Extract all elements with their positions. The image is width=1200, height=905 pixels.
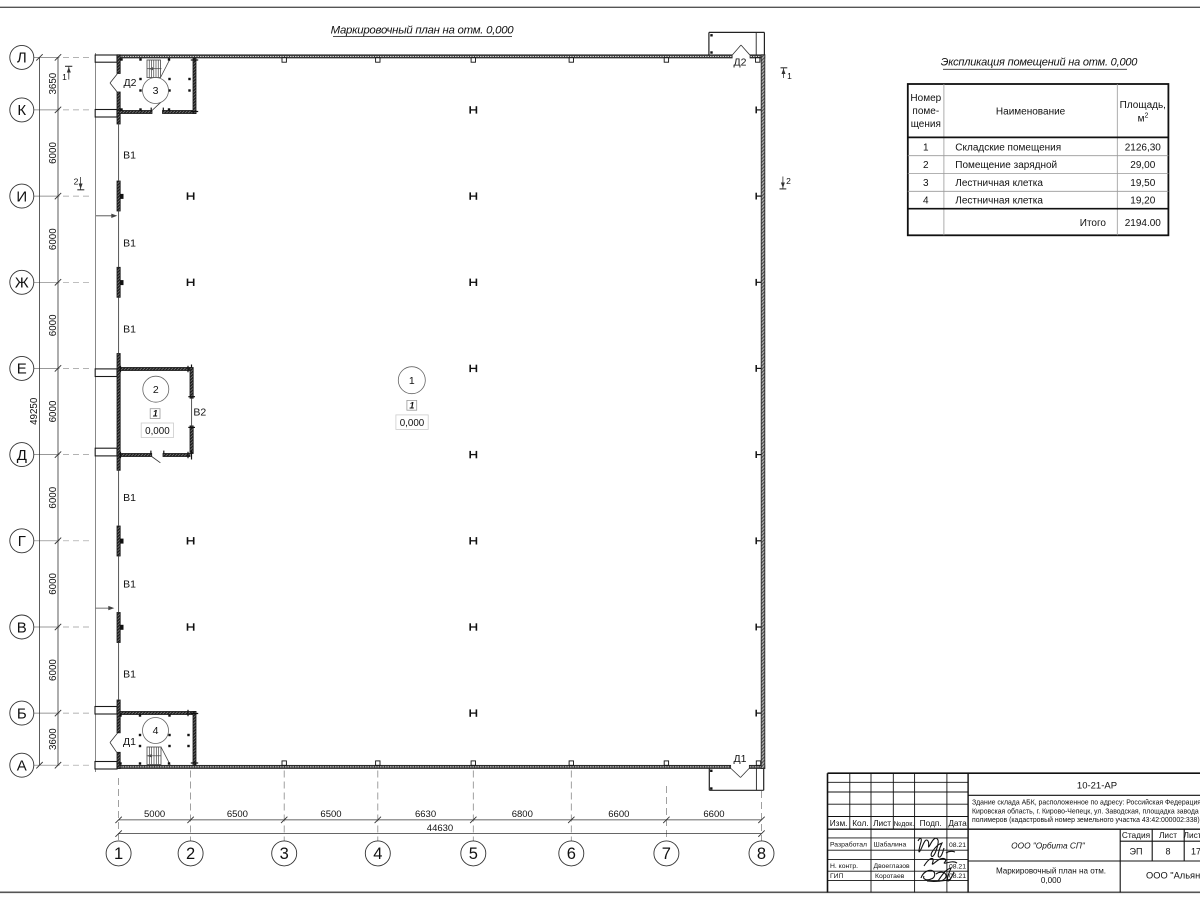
- svg-text:19,50: 19,50: [1130, 178, 1155, 189]
- svg-text:Г: Г: [18, 533, 26, 550]
- svg-text:4: 4: [923, 196, 929, 207]
- svg-text:Лист: Лист: [1159, 830, 1177, 840]
- svg-text:0,000: 0,000: [1041, 876, 1062, 885]
- svg-text:Н. контр.: Н. контр.: [830, 863, 858, 870]
- svg-text:6000: 6000: [48, 400, 59, 422]
- svg-text:Стадия: Стадия: [1122, 830, 1150, 840]
- svg-text:6000: 6000: [48, 142, 59, 164]
- svg-text:Шабалина: Шабалина: [874, 841, 907, 849]
- svg-text:08.21: 08.21: [949, 863, 966, 870]
- svg-text:6000: 6000: [48, 486, 59, 508]
- svg-text:10-21-АР: 10-21-АР: [1077, 780, 1117, 791]
- svg-text:К: К: [17, 102, 26, 119]
- svg-text:Разработал: Разработал: [830, 841, 867, 849]
- svg-text:5000: 5000: [144, 809, 165, 820]
- svg-text:6600: 6600: [703, 809, 724, 820]
- svg-text:6630: 6630: [415, 809, 436, 820]
- svg-text:В1: В1: [123, 150, 136, 162]
- svg-text:2126,30: 2126,30: [1125, 142, 1162, 153]
- svg-text:4: 4: [373, 845, 382, 863]
- svg-text:3650: 3650: [48, 72, 59, 94]
- svg-text:2: 2: [186, 845, 195, 863]
- svg-text:Ж: Ж: [15, 275, 29, 292]
- svg-text:2194.00: 2194.00: [1125, 218, 1162, 229]
- svg-text:3: 3: [153, 85, 159, 97]
- svg-text:Дата: Дата: [948, 818, 967, 828]
- svg-text:6000: 6000: [48, 228, 59, 250]
- svg-text:поме-: поме-: [912, 106, 939, 117]
- svg-text:6800: 6800: [512, 809, 533, 820]
- svg-text:1: 1: [153, 409, 158, 419]
- svg-text:Лестничная клетка: Лестничная клетка: [955, 178, 1043, 189]
- svg-text:Е: Е: [17, 361, 27, 378]
- svg-text:17: 17: [1191, 847, 1200, 857]
- svg-text:Кол.: Кол.: [852, 818, 868, 828]
- svg-text:Лестничная клетка: Лестничная клетка: [955, 196, 1043, 207]
- svg-text:6500: 6500: [320, 809, 341, 820]
- svg-text:2: 2: [923, 160, 929, 171]
- svg-text:Подп.: Подп.: [920, 818, 942, 828]
- svg-text:В: В: [17, 619, 27, 636]
- svg-text:ЭП: ЭП: [1130, 847, 1143, 857]
- svg-text:1: 1: [409, 375, 415, 387]
- svg-text:29,00: 29,00: [1130, 160, 1155, 171]
- svg-text:ГИП: ГИП: [830, 873, 844, 880]
- svg-text:Площадь,: Площадь,: [1120, 100, 1166, 111]
- svg-text:Маркировочный план на отм.: Маркировочный план на отм.: [996, 867, 1106, 876]
- svg-text:6000: 6000: [48, 314, 59, 336]
- svg-text:6: 6: [567, 845, 576, 863]
- svg-text:Д: Д: [17, 447, 27, 464]
- svg-text:В1: В1: [123, 324, 136, 336]
- svg-text:1: 1: [787, 71, 792, 81]
- svg-text:Д2: Д2: [734, 57, 747, 69]
- svg-text:0,000: 0,000: [400, 418, 425, 429]
- svg-text:8: 8: [1165, 847, 1170, 857]
- svg-text:1: 1: [409, 400, 414, 410]
- svg-text:ООО "Орбита СП": ООО "Орбита СП": [1011, 841, 1086, 851]
- svg-text:В1: В1: [123, 579, 136, 591]
- svg-text:49250: 49250: [29, 397, 40, 425]
- svg-text:Здание склада АБК, расположенн: Здание склада АБК, расположенное по адре…: [972, 799, 1200, 807]
- svg-text:щения: щения: [911, 119, 941, 130]
- svg-text:Д2: Д2: [124, 77, 137, 89]
- svg-text:ООО "Альянс": ООО "Альянс": [1146, 871, 1200, 881]
- svg-text:Итого: Итого: [1080, 218, 1107, 229]
- svg-text:2: 2: [786, 176, 791, 186]
- svg-text:5: 5: [469, 845, 478, 863]
- svg-text:Д1: Д1: [123, 736, 136, 748]
- svg-text:6500: 6500: [227, 809, 248, 820]
- svg-text:7: 7: [662, 845, 671, 863]
- svg-text:Кировская область, г. Кирово-Ч: Кировская область, г. Кирово-Чепецк, ул.…: [972, 807, 1199, 815]
- svg-text:Помещение зарядной: Помещение зарядной: [955, 160, 1057, 171]
- svg-text:3: 3: [280, 845, 289, 863]
- svg-text:И: И: [16, 188, 27, 205]
- svg-text:В1: В1: [123, 238, 136, 250]
- svg-text:Листов: Листов: [1184, 830, 1200, 840]
- svg-text:08.21: 08.21: [949, 842, 966, 849]
- svg-text:В1: В1: [123, 492, 136, 504]
- svg-text:6600: 6600: [608, 809, 629, 820]
- svg-text:А: А: [17, 758, 27, 775]
- svg-text:Складские помещения: Складские помещения: [955, 142, 1061, 153]
- svg-text:Изм.: Изм.: [830, 818, 848, 828]
- svg-text:Экспликация помещений на отм.: Экспликация помещений на отм. 0,000: [941, 56, 1139, 68]
- svg-text:44630: 44630: [427, 823, 453, 834]
- svg-text:1: 1: [62, 72, 67, 82]
- svg-text:Л: Л: [17, 50, 27, 67]
- svg-text:полимеров (кадастровый номер з: полимеров (кадастровый номер земельного …: [972, 816, 1200, 824]
- svg-text:Маркировочный план на отм. 0,0: Маркировочный план на отм. 0,000: [331, 24, 515, 36]
- svg-text:Номер: Номер: [910, 93, 941, 104]
- svg-text:8: 8: [757, 845, 766, 863]
- svg-text:1: 1: [923, 142, 929, 153]
- svg-text:Наименование: Наименование: [996, 107, 1066, 118]
- svg-text:2: 2: [74, 177, 79, 187]
- svg-text:Лист: Лист: [873, 818, 891, 828]
- svg-text:19,20: 19,20: [1130, 196, 1155, 207]
- svg-text:Коротаев: Коротаев: [875, 873, 905, 880]
- svg-text:№док.: №док.: [894, 821, 915, 828]
- svg-text:4: 4: [153, 725, 159, 737]
- svg-text:Д1: Д1: [734, 753, 747, 765]
- svg-text:1: 1: [114, 845, 123, 863]
- svg-text:0,000: 0,000: [145, 426, 170, 437]
- svg-text:м: м: [1138, 114, 1145, 125]
- svg-text:Б: Б: [17, 705, 27, 722]
- svg-text:В2: В2: [193, 407, 206, 419]
- svg-text:3: 3: [923, 178, 929, 189]
- svg-text:6000: 6000: [48, 659, 59, 681]
- svg-text:2: 2: [153, 384, 159, 396]
- svg-text:2: 2: [1145, 113, 1149, 120]
- svg-text:3600: 3600: [48, 728, 59, 750]
- svg-text:Двоеглазов: Двоеглазов: [874, 863, 911, 870]
- svg-text:В1: В1: [123, 669, 136, 681]
- svg-text:6000: 6000: [48, 572, 59, 594]
